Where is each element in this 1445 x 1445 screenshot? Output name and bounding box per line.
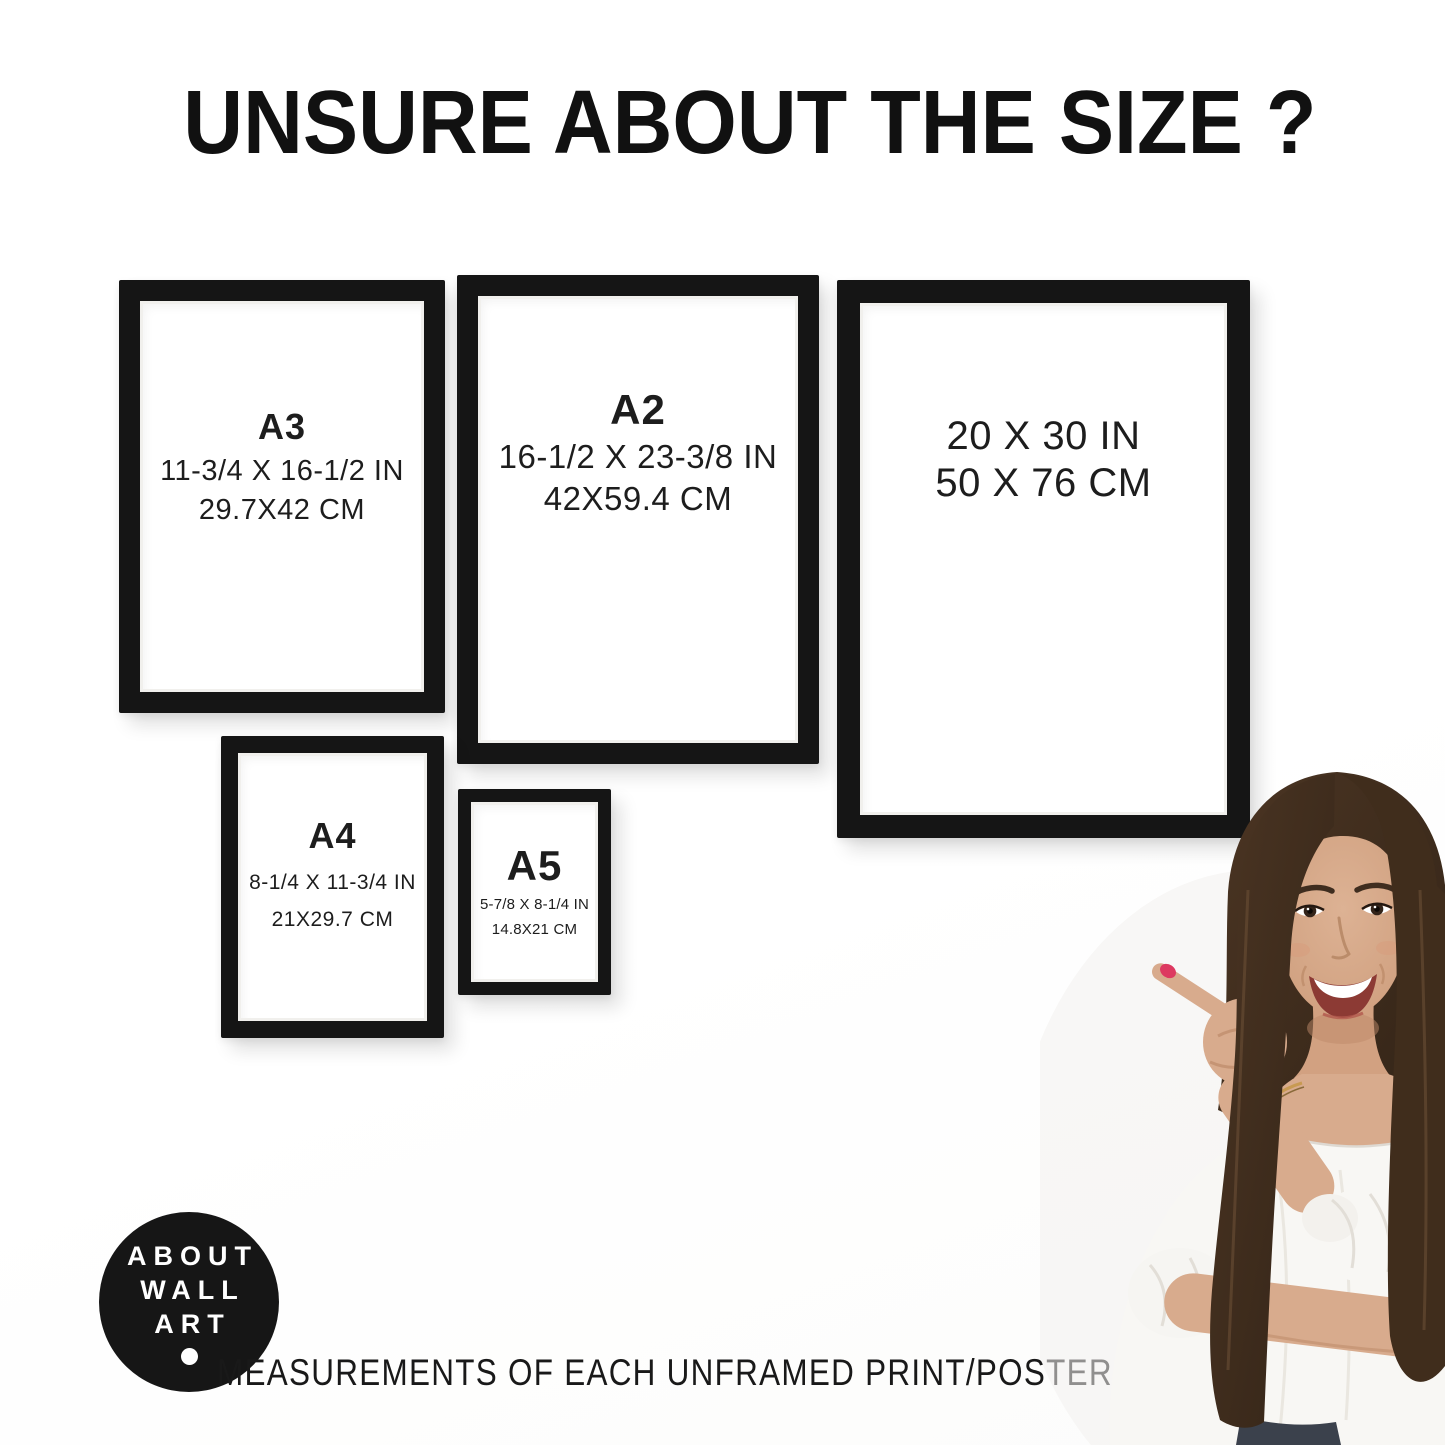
frame-20x30-size-inches: 20 X 30 IN xyxy=(946,413,1140,460)
frame-20x30-size-cm: 50 X 76 CM xyxy=(935,460,1151,507)
frame-a2-label: A2 xyxy=(610,386,666,434)
frame-a3-size-inches: 11-3/4 X 16-1/2 IN xyxy=(160,452,404,491)
frame-20x30: 20 X 30 IN 50 X 76 CM xyxy=(837,280,1250,838)
page-background: UNSURE ABOUT THE SIZE ? A3 11-3/4 X 16-1… xyxy=(0,0,1445,1445)
pointing-woman-photo xyxy=(1040,770,1445,1445)
caption-text: MEASUREMENTS OF EACH UNFRAMED PRINT/POST… xyxy=(217,1352,1113,1394)
logo-line-3: ART xyxy=(147,1307,231,1341)
frame-a4-size-cm: 21X29.7 CM xyxy=(272,908,394,932)
frame-a5-label: A5 xyxy=(507,842,563,890)
frame-a5-size-inches: 5-7/8 X 8-1/4 IN xyxy=(480,896,589,913)
print-a5: A5 5-7/8 X 8-1/4 IN 14.8X21 CM xyxy=(471,802,598,982)
print-a3: A3 11-3/4 X 16-1/2 IN 29.7X42 CM xyxy=(140,301,424,692)
elbow-sleeve xyxy=(1302,1194,1358,1242)
frame-a3: A3 11-3/4 X 16-1/2 IN 29.7X42 CM xyxy=(119,280,445,713)
print-20x30: 20 X 30 IN 50 X 76 CM xyxy=(860,303,1227,815)
print-a4: A4 8-1/4 X 11-3/4 IN 21X29.7 CM xyxy=(238,753,427,1021)
frame-a4: A4 8-1/4 X 11-3/4 IN 21X29.7 CM xyxy=(221,736,444,1038)
page-title: UNSURE ABOUT THE SIZE ? xyxy=(30,72,1445,175)
eye-glint-left xyxy=(1307,908,1310,911)
eye-glint-right xyxy=(1374,906,1377,909)
frame-a5-size-cm: 14.8X21 CM xyxy=(492,921,577,938)
print-a2: A2 16-1/2 X 23-3/8 IN 42X59.4 CM xyxy=(478,296,798,743)
logo-line-1: ABOUT xyxy=(120,1239,258,1273)
frame-a4-label: A4 xyxy=(308,815,356,857)
frame-a2-size-cm: 42X59.4 CM xyxy=(544,478,732,520)
frame-a5: A5 5-7/8 X 8-1/4 IN 14.8X21 CM xyxy=(458,789,611,995)
page-title-text: UNSURE ABOUT THE SIZE ? xyxy=(183,72,1316,175)
frame-a2: A2 16-1/2 X 23-3/8 IN 42X59.4 CM xyxy=(457,275,819,764)
frame-a3-label: A3 xyxy=(258,406,306,448)
logo-line-2: WALL xyxy=(133,1273,244,1307)
frame-a4-size-inches: 8-1/4 X 11-3/4 IN xyxy=(249,871,416,895)
frame-a2-size-inches: 16-1/2 X 23-3/8 IN xyxy=(499,436,778,478)
frame-a3-size-cm: 29.7X42 CM xyxy=(199,491,365,530)
